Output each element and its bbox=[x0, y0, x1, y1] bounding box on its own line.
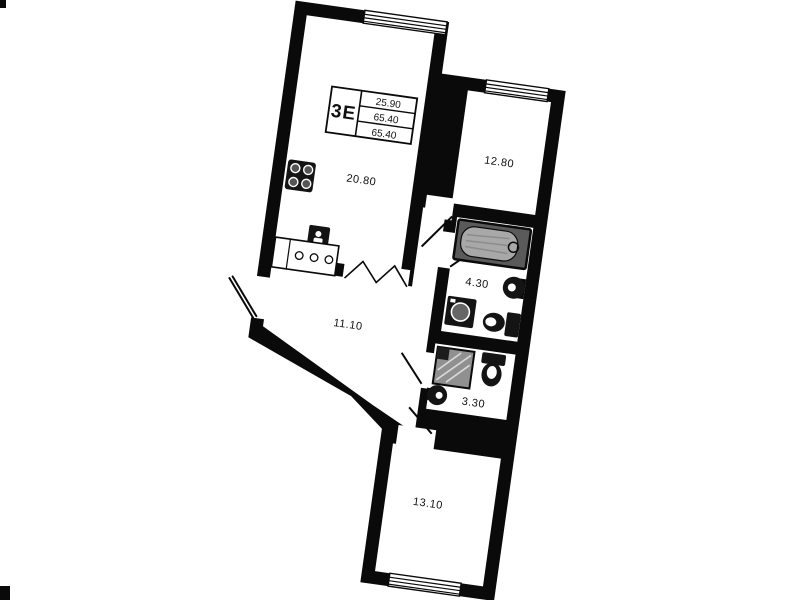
floor-plan-page: 3Е 25.90 65.40 65.40 20.80 12.80 4.30 11… bbox=[0, 0, 799, 600]
unit-code-label: 3Е bbox=[330, 101, 358, 125]
scan-speck bbox=[0, 586, 10, 600]
room-bedroom-upper-floor bbox=[452, 90, 551, 215]
floor-plan-drawing: 3Е 25.90 65.40 65.40 20.80 12.80 4.30 11… bbox=[0, 0, 799, 600]
shower-icon bbox=[433, 347, 475, 389]
scan-speck bbox=[0, 0, 6, 8]
bathtub-icon bbox=[453, 219, 531, 269]
apartment-plan: 3Е 25.90 65.40 65.40 20.80 12.80 4.30 11… bbox=[190, 0, 573, 600]
washing-machine-icon bbox=[444, 296, 477, 329]
room-bedroom-lower-floor bbox=[375, 443, 501, 586]
stove-icon bbox=[284, 159, 316, 193]
bedroom-upper-door-opening bbox=[424, 195, 455, 221]
